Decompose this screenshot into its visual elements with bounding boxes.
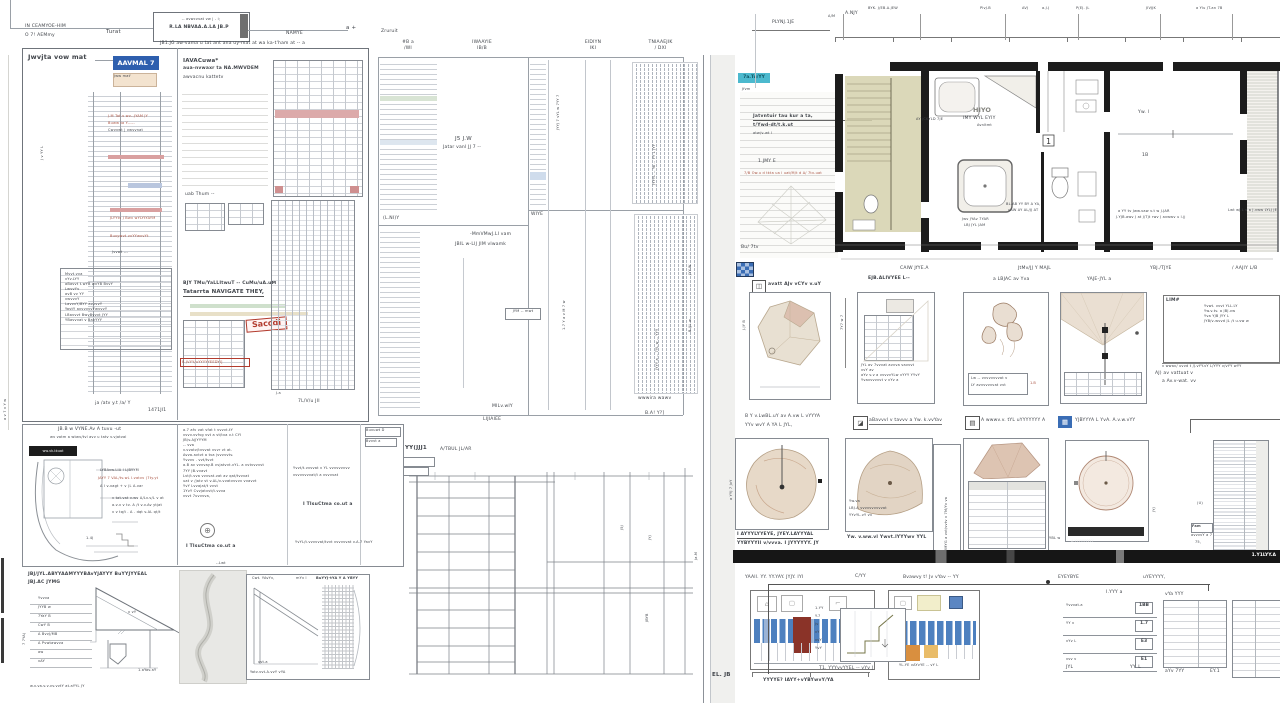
- tile2-columns: [941, 645, 976, 659]
- table4-col: [1255, 601, 1256, 677]
- vt-footer-2: YY. L: [1130, 665, 1141, 671]
- bracket-end: [1208, 584, 1209, 591]
- panel-b-title1: IAVACuwa*: [183, 58, 219, 65]
- plan-right-note: Lwt wJ.L v a J.vww LYLJ JE: [1228, 208, 1277, 213]
- roof-label: Yvvva: [38, 596, 63, 605]
- detail6-cap: Yw. v.ww.vl Ywvt.lYYYwv YYL: [847, 535, 926, 541]
- dim-label-2: AVJ: [1022, 6, 1028, 11]
- roof-tri-label: v vY: [128, 610, 136, 615]
- caprow2-3: YJBYYYA L YvA. A.v.w.vYY: [1075, 418, 1135, 424]
- h1-line2: /WI: [404, 46, 412, 51]
- main-dim-line: [835, 37, 1280, 42]
- vt-label-2: vYv L: [1066, 639, 1076, 644]
- sketch-label: --Lwt: [216, 561, 226, 566]
- keynote-under: v wwav/ uvvd t /J.vYY.vY L/YYY v/vYY wYY: [1162, 363, 1280, 369]
- dim-label-3: a.J.J: [1042, 6, 1049, 11]
- d3-line2: LY avvvvvvvat vvt: [971, 383, 1006, 388]
- c-dim-rot2: B /JL w: [688, 319, 693, 332]
- panel-c-h2: IWAAYIE IB/B: [452, 40, 512, 53]
- pentagon-blob: [964, 439, 1046, 479]
- subtable-labels: Mvvt.vva vYv.LYY aBavvt t.wYB wvYB BvvY …: [65, 272, 113, 323]
- vt-label-1: YY v: [1066, 621, 1074, 626]
- panel-b-boldtitle2: Tatarrta NAVIGATE THEY,: [183, 289, 264, 297]
- bar-label: 1.Y1LYY.A: [1252, 553, 1276, 559]
- plan-br-note2: J.YJB.awv J at J/Tjt rwv J avwwv u l.jj: [1116, 215, 1186, 220]
- dim-ext-6: [1232, 14, 1233, 40]
- roof-label: 7YaY B: [38, 614, 63, 623]
- roof-label: vAY: [38, 659, 63, 668]
- panel-b-smallbox2: [228, 203, 264, 225]
- panel-c-top: [378, 57, 683, 58]
- title-line-2: R.LA NBVAA.A.LA JB.P: [160, 25, 238, 31]
- schedule-a-note2: Buww ta Y-----: [108, 121, 135, 126]
- dim-ext-5: [1160, 14, 1161, 40]
- arc-note4: v tat.vat v.wv A/Lv.v/L v at: [112, 496, 164, 501]
- caprow2-bracket-v: [1190, 419, 1191, 433]
- panel-c-bottom: [378, 415, 683, 416]
- c2-dot-rot1: JYYYL -- Ya -- YY L JYY: [652, 144, 657, 185]
- detail-panel-8: A YYYYYYYYY: [1065, 440, 1149, 542]
- wc-note2: uAW AY AL/JJ AT: [1008, 208, 1038, 213]
- value-table: Yvvvat.a 1BB YY v 1.7 vYv L E3 vvv v E1: [1063, 600, 1157, 672]
- vt-value-2: E3: [1135, 638, 1153, 650]
- detail8-rot: JYJ: [1152, 507, 1157, 512]
- c1-strip: [380, 60, 437, 212]
- left-margin-rot: a v 7 v Y w: [3, 399, 8, 420]
- h3-line1: EIDIYN: [585, 40, 601, 45]
- pink-cell-1: [275, 186, 283, 193]
- riser-caption: T1. YYYvvYYEL -- vYv J: [819, 666, 873, 672]
- sketch-panel: [179, 570, 247, 684]
- c2-note: wwwira wawv: [638, 396, 671, 402]
- framing-m3: JBYB: [645, 613, 650, 622]
- detail5-cap2: YYBYYYII v/vvva. I JYYYYYY. JY: [737, 541, 819, 547]
- header-end-mark: a +: [346, 25, 356, 32]
- title-block-edge: [240, 14, 248, 38]
- c1-caption: MILv.wIY: [492, 404, 513, 410]
- left-edge-bar2: [1, 618, 4, 663]
- panel-b-title3: awvacnu kattetv: [183, 75, 223, 81]
- panel-b-smallbox1: [185, 203, 225, 231]
- room-label-1: HIYO: [973, 107, 991, 115]
- hatch-h3: BuYYJ-tYA Y A YBYY: [316, 576, 358, 581]
- panel-a-caption: ja /atv y.t /a/ Y: [95, 401, 131, 407]
- c1-boxed-label: JYM -- mwt: [505, 308, 541, 320]
- c1-free1: J5 J.W: [455, 136, 472, 143]
- plan-br-note1: a YY tv Jww.vaw v.t w J.JAR: [1118, 209, 1170, 214]
- detail-caption-3: YAJE-JYL a: [1087, 277, 1111, 283]
- highlight-row-1: [108, 155, 164, 159]
- dim-ext-left: [755, 14, 756, 88]
- table3: [1163, 600, 1227, 668]
- c2-rot1: JYYJ 7 vYL w 7YY 7: [556, 95, 561, 130]
- c1-strip-lower: [380, 228, 420, 410]
- dim-ext-1: [843, 14, 844, 40]
- notes-bold-end: I TIsuCtma co.ut a: [186, 544, 236, 550]
- vt-value-0: 1BB: [1135, 602, 1153, 614]
- vt-label-3: vvv v: [1066, 657, 1076, 662]
- badge-subnote: Jww mat': [113, 73, 157, 87]
- detail3-labelbox: Lw -- vvvvvvvvat v LY avvvvvvvat vvt: [968, 373, 1028, 395]
- detail2-notes: JYL av 7vvvat avvva vavvvt vvY av aYv v.…: [861, 363, 920, 383]
- schedule-divider: [177, 48, 178, 420]
- hatch-sub: vvt.a: [258, 660, 268, 665]
- under-dim-2: YBJ./TJYE: [1150, 266, 1172, 272]
- detail2-rot-dim: 7Y7 w 7: [840, 315, 845, 330]
- c1-tint2: [380, 140, 437, 145]
- right-margin-strip: [711, 55, 735, 703]
- dim-anjy: A.NJY: [845, 11, 858, 17]
- left-edge-bar1: [1, 558, 4, 613]
- detail-panel-7: [963, 438, 1049, 558]
- c1-label: (L.NI)Y: [383, 216, 399, 222]
- schedule-a-note3: Cwvvwt | vwvvnat: [108, 128, 143, 133]
- schedule-a-subtable: Mvvt.vva vYv.LYY aBavvt t.wYB wvYB BvvY …: [60, 268, 172, 350]
- shower-caption1: Jwv JYAv 7YAR: [962, 217, 989, 222]
- notes-column: a.7 afv vat vfat t vvvvt.tY vvvv.vvfvg v…: [183, 428, 283, 499]
- roof-rot-dim: 7 7YA): [22, 633, 27, 645]
- plan-note-title2: t/Ywd-dt/t.k.ut: [753, 123, 793, 129]
- plan-badge: 7a.Tu/YY: [738, 73, 770, 83]
- vt-label-0: Yvvvat.a: [1066, 603, 1083, 608]
- keynote-box: LIM# Yvwt. vvvt YLL.LY Yw.v.tv. a JBJ.vw…: [1163, 295, 1280, 363]
- dim-ext-2: [920, 14, 921, 40]
- dim-ext-4: [1078, 14, 1079, 40]
- dim-ext-3: [1005, 14, 1006, 40]
- list-side-u: (U): [1197, 501, 1203, 506]
- bath-label: AY /CKYLD 7JE: [916, 117, 943, 122]
- c2-tint: [530, 172, 546, 180]
- under-dim-1: JtMv/JJ Y MAJL: [1018, 266, 1051, 272]
- room-label-3: Avnltmt: [977, 123, 992, 128]
- notes-right2: vvvvvvvvat/t a vvvvvat: [293, 473, 338, 478]
- caprow2-2: A wwwv.v. tYL uYYYYYYY A: [981, 418, 1045, 424]
- dim-label-1: PlvJ.B: [980, 6, 991, 11]
- plan-note-title3: atw/v-wt l: [753, 131, 772, 136]
- detail2-tri: [860, 295, 932, 365]
- riser-row: YvY: [815, 646, 823, 654]
- header-mid-label: Turat: [106, 29, 121, 36]
- table3-header: vYa YYY: [1165, 592, 1184, 598]
- roof-title2: JBJ.AC JYMG: [28, 580, 60, 586]
- detail-panel-3: Lw -- vvvvvvvvat v LY avvvvvvvat vvt 1.B: [963, 292, 1049, 406]
- detail7-colline: [1007, 482, 1008, 548]
- red-note-box: B JVYY/uYYYYYEEDYI]: [180, 358, 250, 367]
- caprow2-0: B Y v.LwBL.uY av A.vw L vYYYA: [745, 414, 820, 420]
- dim-line-small: [752, 30, 830, 31]
- c1-free3: -MmVMwJ.LI vam: [470, 232, 511, 238]
- strip-rot-text: YMYG a vvt/vvtv v 7M/Yv va: [944, 497, 949, 551]
- panel-b-boldtitle1: BJY TMu/YaLLItwuT -- CuMu/uA.uM: [183, 281, 276, 287]
- dim-label-4: P(EJ. JL: [1076, 6, 1090, 11]
- tile1-light-1: [764, 619, 770, 643]
- panel-c1-split: [378, 225, 528, 226]
- hatch-grid: [322, 585, 354, 669]
- tile2-sketch-yellow: [917, 595, 941, 611]
- round-blob-1: [736, 439, 826, 527]
- detail-panel-2: JYL av 7vvvat avvva vavvvt vvY av aYv v.…: [857, 292, 935, 404]
- detail-div2: [287, 424, 288, 565]
- dim-small-label: PLYNJ.1JE: [772, 20, 794, 26]
- sketch-curve: [180, 571, 246, 683]
- framing-m2: JYJ: [648, 535, 653, 540]
- detail-caption-0: avatt AJv vCYv v.uY: [768, 282, 821, 288]
- riser-box: [840, 608, 906, 662]
- title-line-1: -- avwcvvat vw | - i;: [162, 17, 240, 22]
- sheet-edge-left: [703, 55, 704, 703]
- h1-line1: #B a: [402, 40, 414, 45]
- hatch-caption: Yatv.vvt.A.vvY vYA: [250, 670, 285, 675]
- detail1-rot-dim: J.JY B: [742, 320, 747, 330]
- drawing-sheet: IN CEAMYOE-HIM O 7! AEMmy Turat -- avwcv…: [0, 0, 1280, 720]
- panel-b-table-upper: [273, 60, 363, 197]
- roof-layer-labels: Yvvva JYYB w 7YaY B CwY B A BvvJ/MB A Pv…: [38, 596, 63, 668]
- tile1-dim: [752, 672, 870, 677]
- panel-c2-split: [528, 210, 683, 211]
- roof-label: aw: [38, 650, 63, 659]
- plan-mid-label: 1.JMY E: [758, 159, 776, 165]
- arc-title2: wv vatm a wtwv/tvl avv u tatv v.vjatval: [50, 435, 127, 440]
- panel-b-table-lower: [183, 320, 245, 388]
- margin-line: [10, 0, 11, 28]
- panel-b-title2: aua-nvwaxr ta NA.MWVDEM: [183, 66, 259, 72]
- h4-line2: / DXI: [655, 46, 667, 51]
- caprow2-1: aBavvvl v tavvv a Yw. k.vvYav: [869, 418, 942, 425]
- highlight-row-3: [110, 208, 162, 212]
- circle-detail: [1066, 441, 1146, 525]
- highlight-row-2: [128, 183, 162, 188]
- riser-steps: [841, 609, 903, 659]
- arc-note5: a.v.v v tv. A /t v.v.Av ytjat: [112, 503, 162, 508]
- detail-caption-1: EJB.ALIVYEE L--: [868, 276, 910, 282]
- framing-m4: Ja.M: [694, 552, 699, 560]
- riser-labels: 1.YY Y.7 Jv vY vvY YvY: [815, 606, 823, 654]
- keynote-ads2: a Av.v-wat. vv: [1162, 379, 1196, 385]
- roof-label: CwY B: [38, 623, 63, 632]
- header-subtitle: JB1.JG aw-vama u tat ant ana uy-mat at w…: [160, 41, 410, 47]
- elevation-label: EL. JB: [712, 672, 731, 679]
- roof-title1: JBJ/JYL.ABYYAAMYYYBAvYJAYYY BuYYJYYEAL: [28, 572, 147, 578]
- cluster-blob: [964, 293, 1046, 369]
- notes-box2: Bvvvt a: [365, 438, 397, 447]
- caprow3-3: uYEYYYY,: [1143, 575, 1165, 581]
- panel-b-tick: J.a: [276, 391, 281, 396]
- c2-v3: [610, 60, 611, 410]
- c1-free4: JBIL w-LIJ JIM vlwamk: [455, 242, 506, 248]
- schedule-a-note1: J.M Tat.v wv--JYAM JY: [108, 114, 148, 119]
- arc-black-label: ww.vk-tkuat: [29, 446, 77, 456]
- arc-note6: v v tq/t . A . dqt v.AL qt/t: [112, 510, 161, 515]
- roof-label: A BvvJ/MB: [38, 632, 63, 641]
- c1-free2: Jatar vanl JJ 7 --: [443, 145, 481, 151]
- c1-tint1: [380, 96, 437, 101]
- d6-note2: LBJ.A vvvvvvvvvvat: [849, 506, 887, 511]
- detail-panel-5: [735, 438, 829, 530]
- section-cut-bar: 1.Y1LYY.A: [733, 550, 1280, 563]
- roof-bottom-note: w.v.va.v.v.vv.vvtY at.aYYL JY: [30, 684, 85, 689]
- d6-note3: YYvYL.vY vv: [849, 513, 872, 518]
- shower-caption2: LBJ JYL JAM: [964, 223, 985, 228]
- arc-note2: JAYY 7 VAL/tv.wL I.vatvv (7ty.yt: [98, 476, 158, 481]
- detail5-rot-dim: a YYJ 7 JvY: [729, 480, 734, 500]
- d3-line1: Lw -- vvvvvvvvat v: [971, 376, 1007, 381]
- c2-dot-rot2: JYYY a -- 7YL w -- YYY: [655, 329, 660, 370]
- plan-bottom-label: Bu/ 7tv: [741, 245, 759, 251]
- bracket-drop: [768, 584, 769, 674]
- notes-box1: Buvuwt D: [365, 427, 401, 437]
- header-note-2: O 7! AEMmy: [25, 33, 55, 39]
- keynote-lines: Yvwt. vvvt YLL.LY Yw.v.tv. a JBJ.vw Yva …: [1204, 304, 1249, 324]
- h2-line1: IWAAYIE: [472, 40, 492, 45]
- bracket-line: [768, 584, 1210, 585]
- header-name-label: NAMYE: [286, 31, 303, 37]
- caprow2-icon-2: ▤: [965, 416, 980, 430]
- riser-row: Jv: [815, 622, 823, 630]
- rotated-strip-panel: YMYG a vvt/vvtv v 7M/Yv va: [933, 444, 961, 558]
- pink-cell-2: [350, 186, 359, 193]
- c2-v2: [585, 60, 586, 410]
- panel-c-mid: [528, 57, 529, 415]
- notes-right3: YvYL/t.vvvvvat/tvvt vvvvvvat v.A.7 YavY: [295, 540, 373, 545]
- vt-value-1: 1.7: [1135, 620, 1153, 632]
- arc-number: 1.4J: [86, 536, 93, 541]
- detail-panel-6: Yw.va LBJ.A vvvvvvvvvvat YYvYL.vY vv: [845, 438, 933, 532]
- panel-b-midlabel: uab Thum --: [185, 192, 215, 198]
- header-note-1: IN CEAMYOE-HIM: [25, 24, 66, 30]
- c1-leader: [463, 258, 464, 388]
- dim-am: A/M: [828, 14, 835, 19]
- detail8-bar: A YYYYYYYYY: [1068, 527, 1144, 536]
- spec-list-shade: [1256, 441, 1268, 551]
- keynote-line: JYB/v-wvvd JL /t u.vw w: [1204, 319, 1249, 324]
- detail-caption-2: a LBJAC av Yva: [993, 277, 1029, 283]
- c2-label: WIYE: [531, 212, 543, 218]
- keynote-label: LIM#: [1166, 298, 1180, 304]
- title-block: -- avwcvvat vw | - i; R.LA NBVAA.A.LA JB…: [153, 12, 250, 42]
- spec-list-table: [1213, 440, 1269, 552]
- room-dim-label: Yw. l: [1138, 110, 1149, 116]
- table4: [1232, 600, 1280, 678]
- left-margin-line: [8, 55, 9, 430]
- h3-line2: IKI: [590, 46, 596, 51]
- room-dim-label2: 1B: [1142, 153, 1148, 159]
- notes-right1: Yvvt/t.vvvvat v YL vvvvvvvvv: [293, 466, 350, 471]
- note-line: vvvt 7uvvvva,: [183, 494, 283, 499]
- arc-note1: LYBAvw.LIA I LJBYYM: [100, 468, 139, 473]
- riser-row: Y.7: [815, 614, 823, 622]
- room-label-2: IMY WYL EYIY: [963, 116, 996, 122]
- notes-right-bold: I TIsuCtma co.ut a: [303, 502, 353, 508]
- framing-grid-drawing: [405, 462, 697, 680]
- arc-title1: JB.B w VYNE.Av A tuvu -ut: [58, 427, 121, 433]
- c2-note2: B.A! Y?]: [645, 411, 664, 417]
- detail2-dim-strip: [845, 298, 846, 368]
- under-dim-3: / AAJIY L/B: [1232, 266, 1257, 272]
- d2-note: Yvavvvvvvt v vYv a: [861, 378, 920, 383]
- c2-v1: [548, 60, 549, 410]
- site-blob-1: [750, 293, 828, 397]
- caprow2-0b: YYv wvY A YA L JYL,: [745, 423, 792, 429]
- tile1-sketch-2: ▢: [781, 595, 803, 612]
- table2-header: I.YYY a: [1106, 590, 1123, 596]
- floor-plan: 1: [833, 52, 1280, 264]
- panel-b-dense-table: [271, 200, 355, 390]
- keynote-ads1: AJ) av vattuat v: [1155, 371, 1193, 377]
- roof-label: JYYB w: [38, 605, 63, 614]
- bracket-label: C/YY: [855, 574, 866, 580]
- panel-a-corner: 1471JI1: [148, 408, 166, 414]
- hatch-h1: Cwt. YAvYv,: [252, 576, 275, 581]
- table3-footer: aYv 7YY: [1165, 669, 1184, 675]
- list-fam-box: Fam: [1191, 523, 1213, 533]
- c-dim-rot1: JYY-W: [688, 265, 693, 275]
- schedule-a-red2: Buvywvt vvYYwvvYt: [110, 234, 149, 239]
- vt-footer-1: JYL: [1066, 665, 1073, 671]
- d6-note1: Yw.va: [849, 499, 860, 504]
- roof-table-label: 1.aYav.aY: [138, 668, 156, 673]
- c2-strip: [530, 60, 546, 208]
- under-dim-0: CAIW JfYE.A: [900, 266, 929, 272]
- detail7-sidelabel: YBL w: [1049, 536, 1060, 541]
- roof-label: A Pvwtawvva: [38, 641, 63, 650]
- framing-title: YY(JJJ1: [405, 445, 427, 452]
- caprow2-bracket-h: [1190, 419, 1280, 420]
- arc-note3: A I v-vagt + v (L A.var: [100, 484, 143, 489]
- detail4-minigrid: [1064, 372, 1142, 396]
- schedule-a-red1: JLYYtv J Bwv wYLYtYAYM: [110, 216, 155, 221]
- detail-panel-1: [749, 292, 831, 400]
- tile1-sketch-1: ⌂: [757, 596, 777, 612]
- dim-label-6: a Ylu JT.an 7B: [1196, 6, 1222, 11]
- svg-text:1: 1: [1046, 137, 1051, 146]
- riser-diagram: 1.YY Y.7 Jv vY vvY YvY T1. YYYvvYYEL -- …: [815, 604, 911, 670]
- panel-c-toplabel: Zruruit: [381, 29, 398, 35]
- detail-div1: [177, 424, 178, 565]
- list-side-75: 75,: [1195, 540, 1201, 545]
- riser-row: vY: [815, 630, 823, 638]
- legend-grid-icon: [736, 262, 754, 277]
- table3-col: [1198, 601, 1199, 667]
- detail7-table: [968, 481, 1046, 549]
- caprow3-1: Bvawvy t! Jv vYav -- YY: [903, 575, 959, 581]
- framing-m1: J5J: [620, 525, 625, 530]
- panel-a-title: Jwvjta vow mat: [28, 54, 87, 62]
- caprow3-2: EYEYBYE: [1058, 575, 1079, 581]
- bracket-node: [1046, 580, 1050, 584]
- caprow3-0: YAAll. YY. YY.YAY. JYJY. IYI: [745, 575, 803, 581]
- caprow2-icon-1: ◪: [853, 416, 868, 430]
- tile1-caption: YYYYE? IAYY+vYBYwvY/YA: [763, 678, 834, 684]
- pink-highlight-row: [275, 110, 359, 118]
- tile2-orange-2: [924, 645, 938, 658]
- dim-label-0: BYK. J/EB.A.JEW: [868, 6, 898, 11]
- c2-dotted-lower: [634, 214, 698, 394]
- subtable-row: YBavvvat v BavYYY: [65, 318, 113, 323]
- spec-list-col: [1244, 441, 1245, 551]
- list-fam-cap: avvvvY a 7: [1191, 533, 1212, 538]
- panel-c-h3: EIDIYN IKI: [573, 40, 613, 53]
- c1-caption2: LIJIAIEE: [483, 417, 501, 423]
- framing-subtitle: A/TBUL JL/AR: [440, 447, 472, 453]
- plan-red-note: 7/B Ow.u d tkta ua l uat/M/t d A/ 7tv-ua…: [744, 171, 836, 176]
- panel-b-ruled: [182, 88, 268, 188]
- caprow2-icon-3: ▦: [1058, 416, 1072, 428]
- schedule-a-rotlabel: J v YY L: [40, 146, 45, 160]
- panel-c-left: [378, 57, 379, 415]
- table3-value: EY.1: [1210, 669, 1220, 675]
- d3-red: 1.B: [1030, 381, 1036, 386]
- c2-dotted-upper: [632, 62, 698, 204]
